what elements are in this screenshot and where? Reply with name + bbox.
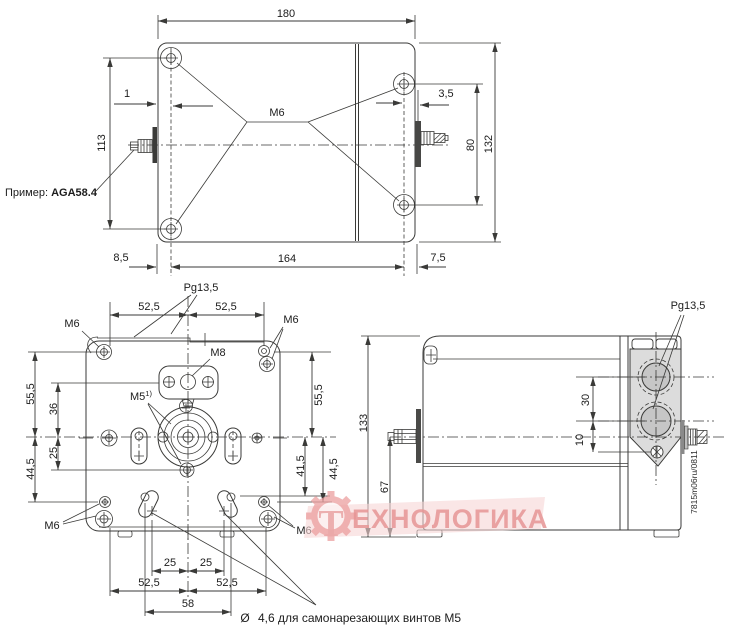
front-view-dimensions: 52,5 52,5 55,5 44,5 36 25 55,5 41,5 44,5 xyxy=(25,301,340,616)
dim-span-left: 52,5 xyxy=(138,301,159,313)
slot-left xyxy=(131,428,147,464)
shaft-left-side xyxy=(388,409,421,463)
doc-number: 7815m06ru/0811 xyxy=(689,450,699,514)
top-view-body xyxy=(128,43,450,276)
dim-52-5-bottom-left: 52,5 xyxy=(138,577,159,589)
cable-gland-label-side: Pg13,5 xyxy=(671,300,706,312)
dim-margin-left: 8,5 xyxy=(113,252,128,264)
front-view-body xyxy=(26,296,336,598)
dim-offset-left: 1 xyxy=(124,88,130,100)
dim-holes-right: 80 xyxy=(465,139,477,151)
dim-25-bottom-right: 25 xyxy=(200,557,212,569)
shaft-left xyxy=(131,127,158,163)
dim-gland-offset: 10 xyxy=(574,434,586,446)
slot-right xyxy=(225,428,241,464)
dim-58: 58 xyxy=(182,598,194,610)
dimensional-drawing: 180 113 1 3,5 80 132 xyxy=(0,0,730,630)
dim-52-5-bottom-right: 52,5 xyxy=(216,577,237,589)
example-label: Пример: AGA58.4 xyxy=(5,187,98,199)
self-tapping-note: 4,6 для самонарезающих винтов M5 xyxy=(258,611,461,625)
dim-44-5-left: 44,5 xyxy=(25,458,37,479)
thread-label-m6-tr: M6 xyxy=(283,314,298,326)
technical-drawing-page: 180 113 1 3,5 80 132 xyxy=(0,0,730,630)
top-view-labels: M6 Пример: AGA58.4 xyxy=(5,63,399,224)
watermark-text: ЕХНОЛОГИКА xyxy=(352,504,548,534)
top-view: 180 113 1 3,5 80 132 xyxy=(5,8,501,276)
side-hole-left xyxy=(101,430,117,446)
dim-base-height: 67 xyxy=(379,481,391,493)
dim-width-top: 180 xyxy=(277,8,295,20)
side-hole-right xyxy=(252,433,262,443)
front-view: Pg13,5 M6 M6 M8 M51) M6 M6 Ø 4,6 для сам… xyxy=(25,282,461,625)
dim-25-bottom-left: 25 xyxy=(164,557,176,569)
dim-25-left: 25 xyxy=(48,447,60,459)
thread-label-m5: M51) xyxy=(130,389,152,403)
clip-top-left xyxy=(424,346,437,364)
diameter-symbol: Ø xyxy=(240,611,249,625)
front-view-labels: Pg13,5 M6 M6 M8 M51) M6 M6 Ø 4,6 для сам… xyxy=(44,282,461,625)
shaft-right xyxy=(415,121,448,167)
dim-height-side: 133 xyxy=(358,414,370,432)
dim-44-5-right: 44,5 xyxy=(328,458,340,479)
keyhole-right xyxy=(216,489,240,520)
thread-label-m6-bl: M6 xyxy=(44,520,59,532)
diameter-note: Ø 4,6 для самонарезающих винтов M5 xyxy=(240,611,461,625)
thread-label-m6-top-view: M6 xyxy=(269,107,284,119)
dim-36: 36 xyxy=(48,403,60,415)
dim-offset-right: 3,5 xyxy=(438,88,453,100)
m6-holes-bottom-left xyxy=(96,497,113,528)
m8-slot xyxy=(159,366,218,407)
m6-holes-bottom-right xyxy=(259,497,277,528)
dim-55-5-left: 55,5 xyxy=(25,383,37,404)
dim-margin-right: 7,5 xyxy=(430,252,445,264)
watermark-logo-letter: Т xyxy=(318,503,343,545)
dim-span-right: 52,5 xyxy=(215,301,236,313)
dim-41-5: 41,5 xyxy=(295,455,307,476)
plate-screw xyxy=(651,446,663,458)
dim-height-right: 132 xyxy=(483,135,495,153)
thread-label-m6-tl: M6 xyxy=(64,318,79,330)
dim-gland-spacing: 30 xyxy=(580,394,592,406)
keyhole-left xyxy=(137,489,161,520)
dim-height-left: 113 xyxy=(96,134,108,152)
thread-label-m8: M8 xyxy=(210,347,225,359)
dim-holes-bottom: 164 xyxy=(278,253,296,265)
cable-gland-label: Pg13,5 xyxy=(184,282,219,294)
dim-55-5-right: 55,5 xyxy=(313,384,325,405)
